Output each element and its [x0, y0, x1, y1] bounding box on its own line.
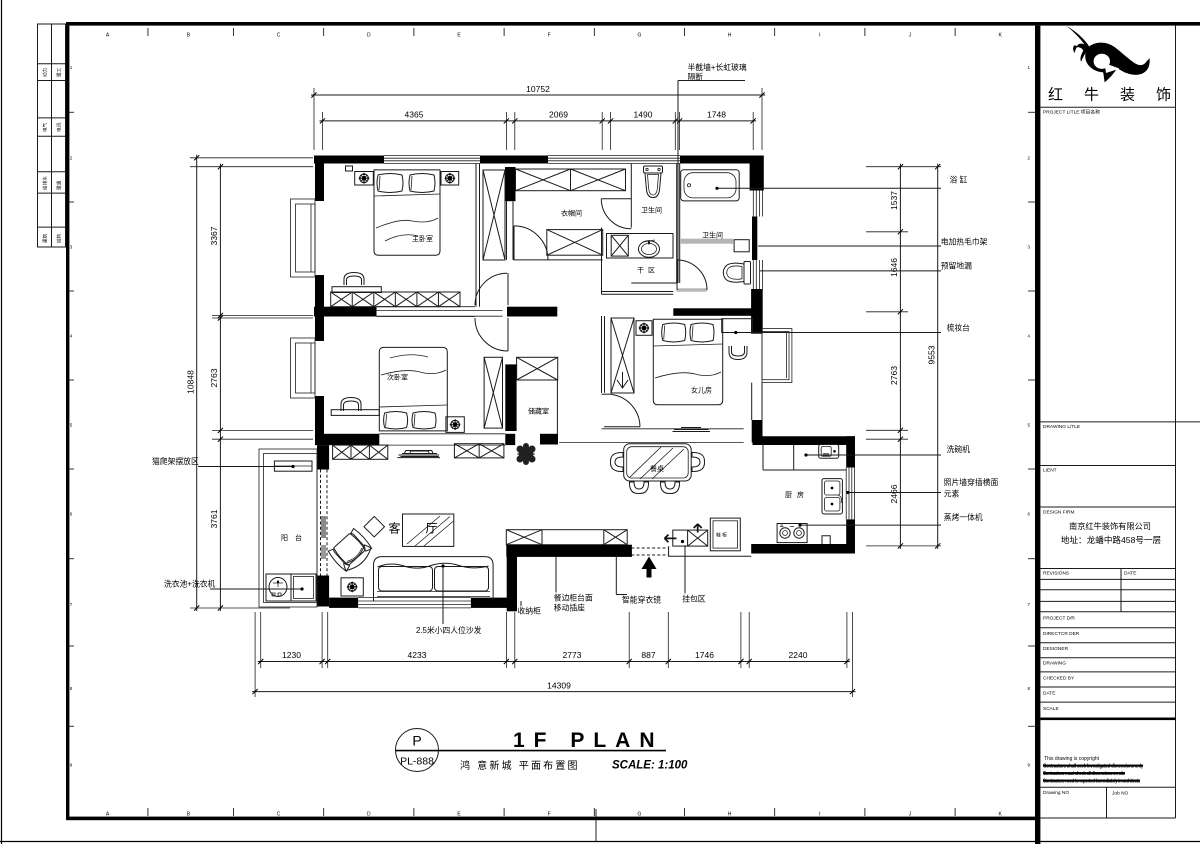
svg-text:女儿房: 女儿房: [691, 386, 712, 395]
svg-text:餐桌: 餐桌: [650, 464, 664, 473]
svg-text:衣帽间: 衣帽间: [561, 209, 582, 218]
svg-text:2466: 2466: [889, 484, 899, 503]
svg-text:储藏室: 储藏室: [528, 407, 549, 416]
svg-text:D: D: [367, 812, 371, 818]
svg-text:主卧室: 主卧室: [412, 234, 433, 243]
svg-text:卫生间: 卫生间: [702, 231, 723, 240]
svg-text:给排水: 给排水: [42, 176, 49, 190]
svg-text:蒸烤一体机: 蒸烤一体机: [944, 512, 983, 522]
svg-text:洗碗机: 洗碗机: [947, 444, 971, 454]
svg-text:H: H: [728, 812, 732, 818]
svg-text:干区: 干区: [637, 267, 659, 275]
svg-text:G: G: [637, 812, 641, 818]
svg-text:DRAWING: DRAWING: [1043, 661, 1066, 667]
svg-text:预留地漏: 预留地漏: [941, 260, 972, 270]
svg-text:DRAWING L/TLE: DRAWING L/TLE: [1043, 424, 1080, 430]
svg-text:P: P: [412, 733, 421, 749]
svg-text:卫生间: 卫生间: [641, 206, 662, 215]
svg-text:PROJECT LITLE 项目名称: PROJECT LITLE 项目名称: [1043, 109, 1100, 116]
svg-text:1230: 1230: [282, 650, 301, 660]
svg-text:2069: 2069: [549, 110, 568, 120]
svg-text:Drawing NO: Drawing NO: [1043, 790, 1069, 796]
svg-text:暖通: 暖通: [56, 180, 63, 190]
svg-text:C: C: [277, 33, 281, 39]
svg-text:This drawing is copyright: This drawing is copyright: [1044, 756, 1100, 762]
svg-text:猫爬架摆放区: 猫爬架摆放区: [152, 456, 199, 466]
svg-text:挂包区: 挂包区: [682, 594, 706, 604]
svg-text:887: 887: [641, 650, 655, 660]
svg-text:DIRECTCR DER: DIRECTCR DER: [1043, 631, 1080, 637]
svg-text:浴 缸: 浴 缸: [950, 174, 968, 184]
svg-text:CHECKED BY: CHECKED BY: [1043, 676, 1075, 682]
svg-text:动力: 动力: [42, 67, 49, 77]
svg-text:结构: 结构: [56, 233, 63, 243]
svg-text:次卧室: 次卧室: [387, 373, 408, 382]
svg-text:电加热毛巾架: 电加热毛巾架: [941, 237, 988, 247]
svg-text:DATE: DATE: [1124, 571, 1136, 577]
svg-text:南京红牛装饰有限公司: 南京红牛装饰有限公司: [1069, 521, 1151, 531]
svg-text:DATE: DATE: [1043, 691, 1055, 697]
svg-text:阳台: 阳台: [281, 533, 309, 542]
svg-text:地址：龙蟠中路458号一层: 地址：龙蟠中路458号一层: [1061, 534, 1162, 545]
svg-text:DESIGN FIRM: DESIGN FIRM: [1043, 510, 1074, 516]
svg-text:照片墙穿插横面: 照片墙穿插横面: [944, 477, 999, 487]
svg-text:1746: 1746: [695, 650, 714, 660]
svg-text:C: C: [277, 812, 281, 818]
svg-text:14309: 14309: [547, 680, 571, 690]
svg-text:H: H: [728, 33, 732, 39]
svg-text:DESIGNER: DESIGNER: [1043, 646, 1069, 652]
svg-text:客: 客: [389, 521, 401, 536]
svg-text:10848: 10848: [186, 370, 196, 394]
svg-text:I: I: [819, 812, 820, 818]
svg-text:9553: 9553: [927, 345, 937, 364]
svg-text:鸿 意新城 平面布置图: 鸿 意新城 平面布置图: [460, 759, 580, 772]
svg-text:2773: 2773: [563, 650, 582, 660]
svg-text:2763: 2763: [209, 368, 219, 387]
svg-text:SCALE: SCALE: [1043, 706, 1059, 712]
svg-text:厅: 厅: [426, 522, 438, 536]
svg-text:D: D: [367, 33, 371, 39]
svg-text:4365: 4365: [405, 110, 424, 120]
svg-text:1646: 1646: [889, 258, 899, 277]
svg-text:2240: 2240: [789, 650, 808, 660]
svg-text:F: F: [548, 33, 551, 39]
svg-text:红牛装饰: 红牛装饰: [1048, 87, 1192, 104]
svg-text:电讯: 电讯: [56, 122, 63, 132]
svg-text:电气: 电气: [42, 122, 48, 132]
svg-text:元素: 元素: [944, 488, 960, 498]
svg-text:梳妆台: 梳妆台: [947, 323, 971, 333]
svg-text:餐边柜台面: 餐边柜台面: [554, 593, 593, 603]
svg-text:厨房: 厨房: [785, 490, 809, 499]
svg-text:1490: 1490: [634, 110, 653, 120]
svg-text:1748: 1748: [707, 110, 726, 120]
svg-text:洗衣池+洗衣机: 洗衣池+洗衣机: [164, 579, 216, 589]
svg-text:PROJECT D/R: PROJECT D/R: [1043, 616, 1075, 622]
svg-text:REVISIONS: REVISIONS: [1043, 571, 1069, 577]
svg-text:I: I: [819, 33, 820, 39]
svg-text:鞋 柜: 鞋 柜: [716, 532, 727, 539]
svg-text:1F PLAN: 1F PLAN: [513, 729, 664, 752]
svg-text:移动插座: 移动插座: [554, 603, 585, 613]
svg-text:F: F: [548, 812, 551, 818]
svg-text:3761: 3761: [209, 509, 219, 528]
svg-text:1537: 1537: [889, 191, 899, 210]
svg-text:收纳柜: 收纳柜: [518, 606, 542, 616]
svg-text:4233: 4233: [408, 650, 427, 660]
svg-text:LIENT: LIENT: [1043, 468, 1057, 474]
svg-text:2763: 2763: [889, 366, 899, 385]
svg-text:SCALE: 1:100: SCALE: 1:100: [612, 760, 688, 772]
svg-text:建筑: 建筑: [42, 233, 49, 243]
svg-text:暖工: 暖工: [56, 67, 63, 77]
svg-text:Job NO: Job NO: [1112, 791, 1129, 797]
svg-text:G: G: [637, 33, 641, 39]
svg-text:3367: 3367: [209, 226, 219, 245]
svg-text:智能穿衣镜: 智能穿衣镜: [622, 595, 661, 605]
svg-text:2.5米小四人位沙发: 2.5米小四人位沙发: [416, 625, 482, 635]
svg-text:PL-888: PL-888: [400, 756, 434, 768]
svg-text:10752: 10752: [526, 84, 550, 94]
svg-text:半截墙+长虹玻璃: 半截墙+长虹玻璃: [688, 62, 747, 72]
